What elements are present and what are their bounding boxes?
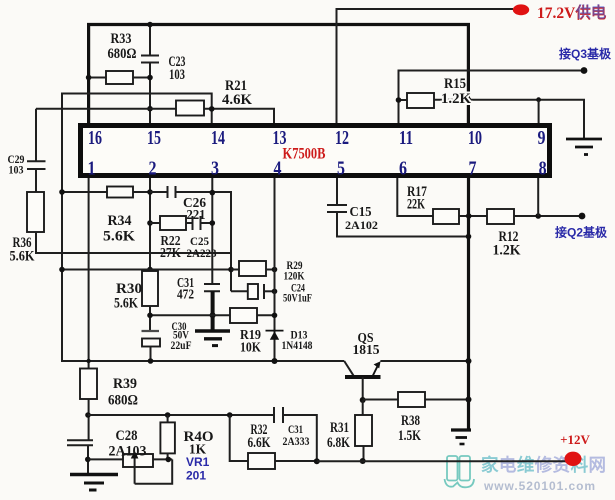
svg-text:1.2K: 1.2K [493, 243, 521, 259]
svg-text:www.520101.com: www.520101.com [483, 479, 596, 493]
svg-text:16: 16 [88, 128, 102, 149]
svg-text:22uF: 22uF [171, 338, 192, 352]
svg-text:1815: 1815 [353, 343, 380, 358]
svg-text:K7500B: K7500B [283, 146, 326, 163]
svg-text:VR1: VR1 [186, 455, 210, 469]
svg-text:2A333: 2A333 [283, 434, 310, 448]
svg-text:5.6K: 5.6K [10, 249, 35, 265]
svg-text:C28: C28 [116, 428, 138, 444]
svg-text:3: 3 [211, 159, 219, 180]
svg-text:5: 5 [337, 159, 345, 180]
svg-text:R33: R33 [111, 31, 132, 47]
svg-text:7: 7 [469, 159, 477, 180]
svg-text:14: 14 [211, 128, 225, 149]
svg-text:103: 103 [9, 163, 24, 177]
svg-text:1.5K: 1.5K [398, 428, 421, 444]
svg-text:221: 221 [187, 207, 206, 222]
svg-text:2A102: 2A102 [345, 218, 378, 232]
svg-text:201: 201 [186, 469, 206, 483]
svg-text:4: 4 [274, 159, 282, 180]
svg-text:1.2K: 1.2K [441, 91, 471, 107]
svg-text:接Q3基极: 接Q3基极 [559, 46, 612, 61]
svg-text:R31: R31 [330, 420, 349, 436]
svg-text:50V1uF: 50V1uF [283, 291, 312, 305]
svg-text:2: 2 [149, 159, 157, 180]
svg-text:103: 103 [169, 67, 185, 83]
svg-text:5.6K: 5.6K [103, 229, 135, 245]
svg-text:11: 11 [399, 128, 413, 149]
svg-text:680Ω: 680Ω [108, 393, 138, 409]
svg-text:C15: C15 [350, 204, 372, 219]
svg-text:5.6K: 5.6K [114, 296, 138, 312]
svg-text:6.6K: 6.6K [248, 435, 271, 451]
svg-text:接Q2基极: 接Q2基极 [555, 225, 608, 240]
svg-text:R34: R34 [108, 213, 132, 229]
svg-text:680Ω: 680Ω [108, 46, 137, 62]
svg-text:8: 8 [539, 159, 547, 180]
svg-text:10: 10 [468, 128, 482, 149]
svg-text:R39: R39 [113, 376, 137, 392]
svg-text:12: 12 [335, 128, 349, 149]
svg-text:10K: 10K [240, 340, 261, 355]
svg-text:4.6K: 4.6K [222, 92, 252, 108]
svg-text:1: 1 [88, 159, 96, 180]
svg-text:供电: 供电 [575, 3, 606, 21]
svg-text:家电维修资料网: 家电维修资料网 [481, 455, 606, 475]
svg-text:9: 9 [538, 128, 546, 149]
svg-text:+12V: +12V [560, 432, 590, 447]
svg-text:6: 6 [399, 159, 407, 180]
svg-text:27K: 27K [160, 245, 181, 260]
svg-text:15: 15 [147, 128, 161, 149]
svg-text:6.8K: 6.8K [327, 435, 350, 451]
svg-text:2A103: 2A103 [109, 444, 147, 460]
svg-text:R38: R38 [401, 413, 420, 429]
svg-text:1N4148: 1N4148 [282, 338, 313, 352]
svg-text:22K: 22K [407, 197, 425, 213]
svg-text:472: 472 [177, 287, 194, 302]
svg-text:R15: R15 [444, 76, 466, 92]
